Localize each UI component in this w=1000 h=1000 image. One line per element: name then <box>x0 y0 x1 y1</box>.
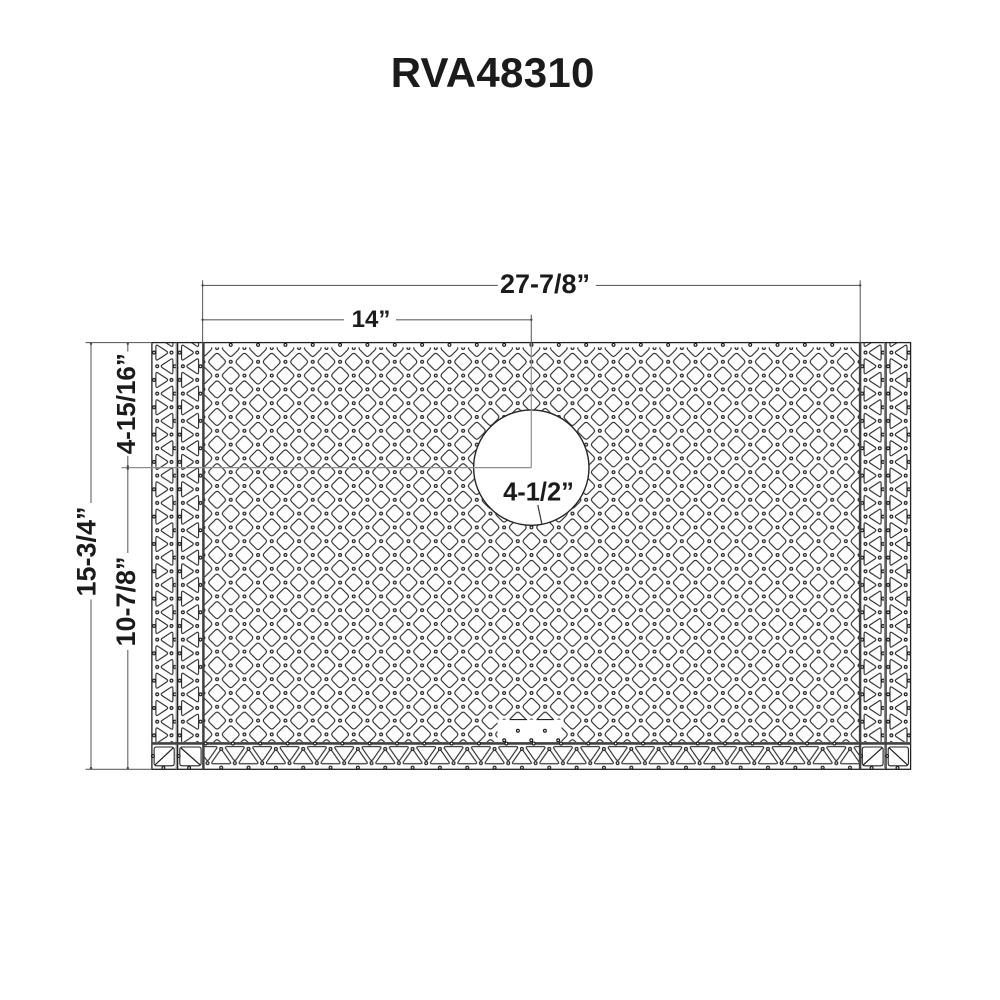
svg-text:14”: 14” <box>352 306 391 333</box>
svg-text:15-3/4”: 15-3/4” <box>72 506 102 596</box>
svg-text:RVA48310: RVA48310 <box>391 49 595 96</box>
svg-text:4-15/16”: 4-15/16” <box>111 353 141 454</box>
svg-text:4-1/2”: 4-1/2” <box>503 479 574 507</box>
svg-text:27-7/8”: 27-7/8” <box>500 269 590 299</box>
svg-text:10-7/8”: 10-7/8” <box>111 556 141 646</box>
